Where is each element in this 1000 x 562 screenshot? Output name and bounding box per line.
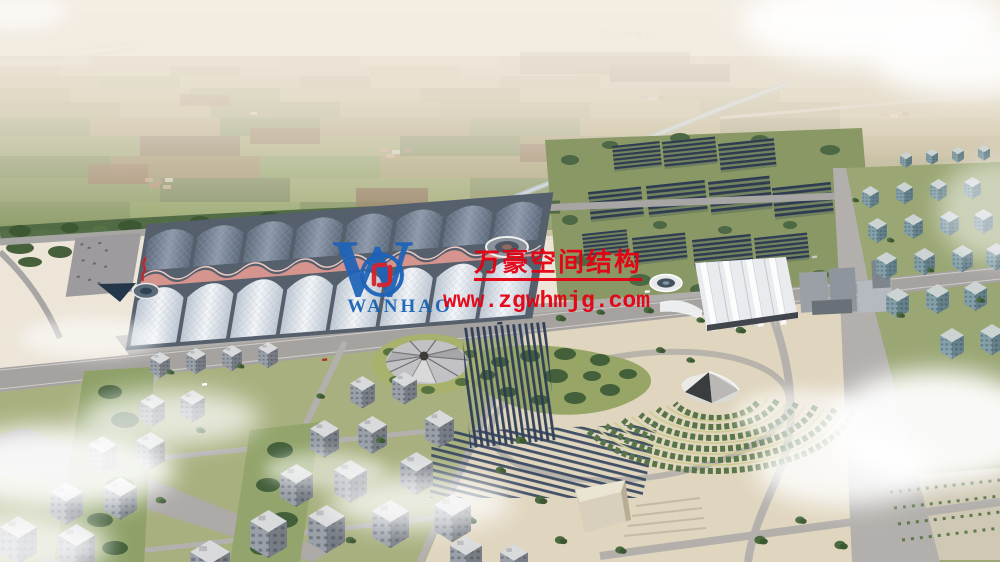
watermark-company-name: 万豪空间结构 — [474, 249, 642, 281]
watermark-website: www.zgwhmjg.com — [443, 288, 650, 314]
watermark-logo-ring — [360, 253, 404, 297]
east-round-pavilion — [650, 275, 682, 292]
wanhao-monogram-icon — [365, 258, 399, 292]
aerial-rendering: W WANHAO 万豪空间结构 www.zgwhmjg.com — [0, 0, 1000, 562]
west-round-pavilion — [133, 284, 159, 299]
